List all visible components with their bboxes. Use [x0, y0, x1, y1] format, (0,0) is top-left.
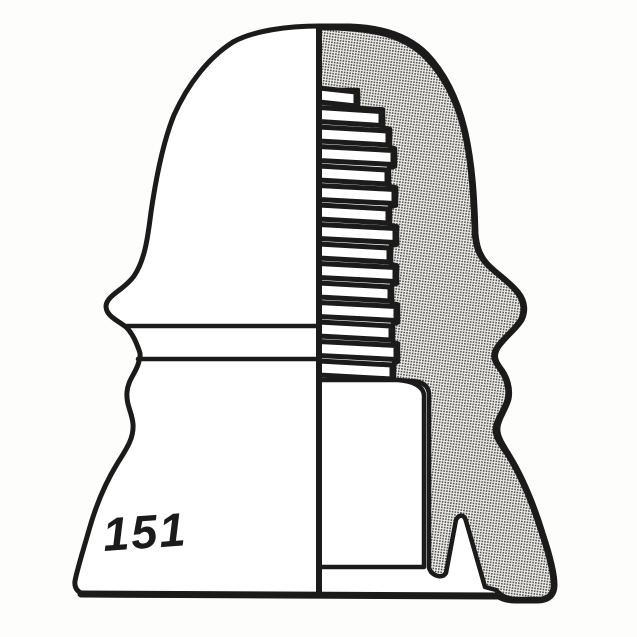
thread-slat	[319, 322, 391, 340]
thread-slat	[319, 127, 388, 145]
pinhole-threads	[319, 88, 396, 379]
thread-slat	[319, 225, 395, 243]
thread-slat	[319, 361, 392, 379]
thread-slat	[319, 244, 389, 262]
thread-slat	[319, 342, 396, 360]
thread-slat	[319, 186, 394, 204]
thread-slat	[319, 166, 387, 184]
thread-slat	[319, 205, 388, 223]
thread-slat	[319, 108, 381, 126]
thread-slat	[319, 147, 393, 165]
drawing-canvas: 151	[0, 0, 637, 637]
insulator-cross-section-diagram: 151	[0, 0, 637, 637]
thread-slat	[319, 88, 356, 106]
thread-slat	[319, 264, 395, 282]
thread-slat	[319, 283, 390, 301]
pinhole-cavity	[319, 380, 424, 567]
base-line	[81, 594, 497, 596]
figure-number-label: 151	[101, 502, 189, 561]
thread-slat	[319, 303, 396, 321]
